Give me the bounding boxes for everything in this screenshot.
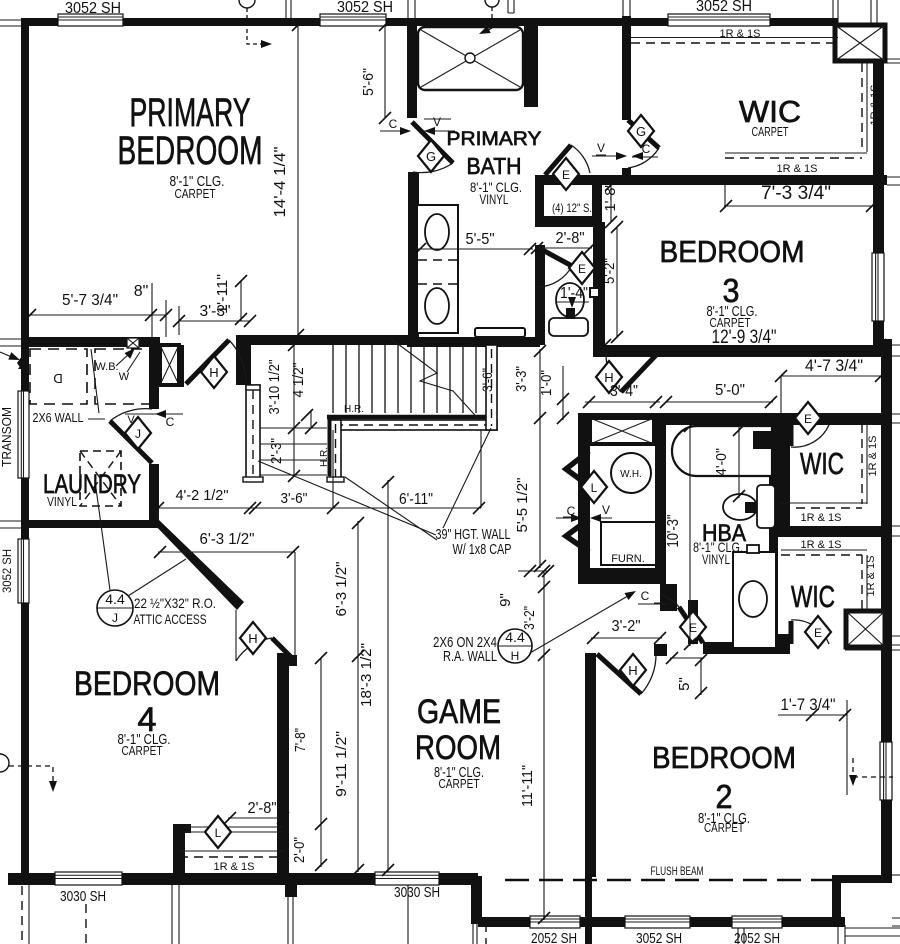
svg-text:WIC: WIC (791, 579, 835, 614)
svg-text:2'-0": 2'-0" (291, 837, 308, 863)
svg-text:4'-7 3/4": 4'-7 3/4" (805, 356, 863, 375)
svg-text:BEDROOM: BEDROOM (74, 665, 220, 703)
svg-text:VINYL: VINYL (480, 191, 509, 207)
svg-text:V: V (127, 414, 135, 426)
svg-text:3'-6": 3'-6" (479, 368, 495, 392)
svg-text:H: H (628, 663, 637, 678)
svg-text:2052 SH: 2052 SH (734, 930, 780, 944)
svg-text:1R & 1S: 1R & 1S (865, 556, 877, 597)
svg-text:TRANSOM: TRANSOM (0, 407, 14, 467)
svg-text:CARPET: CARPET (122, 743, 163, 758)
svg-text:3'-10 1/2": 3'-10 1/2" (266, 360, 283, 415)
svg-text:H.R.: H.R. (319, 447, 330, 467)
svg-text:V: V (602, 503, 610, 517)
svg-text:18'-3 1/2": 18'-3 1/2" (358, 643, 375, 707)
svg-text:CARPET: CARPET (175, 186, 216, 201)
svg-text:C: C (389, 117, 398, 131)
svg-text:V: V (433, 115, 441, 129)
svg-text:L: L (591, 481, 598, 495)
svg-text:12'-9 3/4": 12'-9 3/4" (712, 327, 777, 348)
svg-text:6'-3 1/2": 6'-3 1/2" (200, 531, 255, 548)
svg-text:8": 8" (134, 283, 149, 300)
svg-text:2'-3": 2'-3" (268, 438, 285, 464)
svg-text:5'-6": 5'-6" (360, 68, 377, 96)
svg-text:6'-11": 6'-11" (399, 491, 433, 508)
svg-text:2'-8": 2'-8" (556, 230, 585, 247)
svg-text:2X6 WALL: 2X6 WALL (33, 410, 84, 425)
svg-text:FURN.: FURN. (611, 553, 645, 565)
svg-text:10'-3": 10'-3" (665, 515, 682, 548)
svg-text:3'-4": 3'-4" (610, 383, 638, 400)
svg-text:5": 5" (676, 677, 693, 691)
svg-text:1'-0": 1'-0" (538, 370, 555, 396)
svg-text:3052 SH: 3052 SH (0, 549, 14, 593)
svg-text:5'-0": 5'-0" (715, 382, 745, 399)
svg-text:L: L (215, 826, 222, 840)
svg-text:4.4: 4.4 (105, 591, 125, 607)
svg-text:1'-8": 1'-8" (602, 183, 619, 212)
svg-text:G: G (636, 124, 646, 139)
svg-text:J: J (112, 611, 118, 625)
svg-text:CARPET: CARPET (752, 124, 789, 139)
svg-text:D: D (53, 371, 62, 386)
svg-text:9'-11 1/2": 9'-11 1/2" (333, 731, 350, 797)
svg-text:1R & 1S: 1R & 1S (867, 436, 879, 477)
svg-text:1R & 1S: 1R & 1S (777, 163, 818, 175)
svg-text:3'-2": 3'-2" (521, 606, 538, 630)
svg-text:22 ½"X32" R.O.: 22 ½"X32" R.O. (134, 595, 216, 611)
svg-text:ATTIC ACCESS: ATTIC ACCESS (134, 611, 207, 627)
svg-text:H.R.: H.R. (344, 404, 364, 415)
svg-text:VINYL: VINYL (702, 551, 730, 567)
svg-text:1R & 1S: 1R & 1S (801, 539, 842, 551)
svg-text:R.A. WALL: R.A. WALL (443, 648, 497, 665)
svg-text:(4) 12" S.: (4) 12" S. (552, 201, 592, 215)
svg-text:1R & 1S: 1R & 1S (869, 85, 881, 126)
svg-text:1'-11": 1'-11" (214, 274, 231, 314)
svg-text:G: G (426, 149, 436, 164)
svg-text:E: E (814, 626, 822, 640)
svg-text:W.H.: W.H. (620, 469, 642, 480)
svg-text:5'-5": 5'-5" (466, 231, 495, 248)
svg-text:2'-8": 2'-8" (248, 800, 277, 817)
svg-text:C: C (642, 142, 651, 156)
svg-text:FLUSH BEAM: FLUSH BEAM (651, 864, 704, 878)
svg-text:4 1/2": 4 1/2" (290, 363, 307, 398)
svg-text:3'-6": 3'-6" (281, 490, 308, 507)
svg-text:1R & 1S: 1R & 1S (720, 28, 761, 40)
svg-text:C: C (641, 589, 650, 603)
svg-text:PRIMARY: PRIMARY (447, 129, 542, 150)
svg-text:WIC: WIC (800, 446, 844, 481)
svg-text:BATH: BATH (467, 153, 522, 179)
svg-text:14'-4 1/4": 14'-4 1/4" (272, 147, 289, 218)
svg-text:11'-11": 11'-11" (519, 765, 536, 807)
svg-text:E: E (562, 168, 570, 182)
svg-text:BEDROOM: BEDROOM (118, 129, 263, 173)
svg-text:3052 SH: 3052 SH (636, 930, 682, 944)
svg-text:3052 SH: 3052 SH (337, 0, 393, 16)
svg-text:H: H (511, 649, 520, 663)
svg-text:CARPET: CARPET (439, 776, 480, 791)
svg-text:5'-7 3/4": 5'-7 3/4" (62, 292, 118, 309)
svg-text:3'-3": 3'-3" (513, 366, 530, 392)
svg-text:H: H (248, 631, 257, 646)
svg-text:1'-7 3/4": 1'-7 3/4" (781, 695, 836, 714)
svg-text:VINYL: VINYL (47, 494, 77, 509)
svg-text:5'-2": 5'-2" (601, 258, 618, 284)
svg-text:W/ 1x8 CAP: W/ 1x8 CAP (453, 541, 512, 558)
svg-text:3052 SH: 3052 SH (65, 0, 121, 17)
svg-text:4'-2 1/2": 4'-2 1/2" (176, 487, 229, 504)
svg-text:BEDROOM: BEDROOM (652, 740, 796, 775)
svg-text:4'-0": 4'-0" (713, 448, 730, 476)
svg-text:V: V (597, 141, 605, 155)
svg-text:9": 9" (497, 593, 514, 607)
svg-text:C: C (166, 415, 175, 429)
svg-text:GAME: GAME (417, 693, 501, 731)
svg-text:ROOM: ROOM (415, 729, 501, 767)
svg-text:3030 SH: 3030 SH (394, 884, 440, 901)
svg-text:6'-3 1/2": 6'-3 1/2" (333, 562, 350, 617)
svg-text:1'-4": 1'-4" (560, 285, 588, 302)
svg-text:1R & 1S: 1R & 1S (801, 512, 842, 524)
svg-text:7'-3 3/4": 7'-3 3/4" (761, 183, 831, 204)
svg-text:W.B.: W.B. (95, 361, 118, 373)
svg-text:H: H (209, 365, 218, 380)
svg-text:2052 SH: 2052 SH (531, 930, 577, 944)
svg-text:3030 SH: 3030 SH (60, 888, 106, 905)
svg-text:7'-8": 7'-8" (292, 728, 309, 752)
svg-text:E: E (804, 412, 812, 426)
svg-text:CARPET: CARPET (704, 820, 744, 835)
svg-text:4.4: 4.4 (505, 629, 525, 645)
svg-text:3052 SH: 3052 SH (696, 0, 752, 15)
svg-text:5'-5 1/2": 5'-5 1/2" (514, 478, 531, 533)
svg-text:W: W (119, 371, 130, 383)
svg-text:J: J (135, 427, 141, 441)
svg-text:BEDROOM: BEDROOM (660, 234, 805, 269)
svg-text:1R & 1S: 1R & 1S (214, 861, 255, 873)
svg-text:3'-2": 3'-2" (612, 618, 641, 635)
svg-text:E: E (578, 262, 586, 276)
